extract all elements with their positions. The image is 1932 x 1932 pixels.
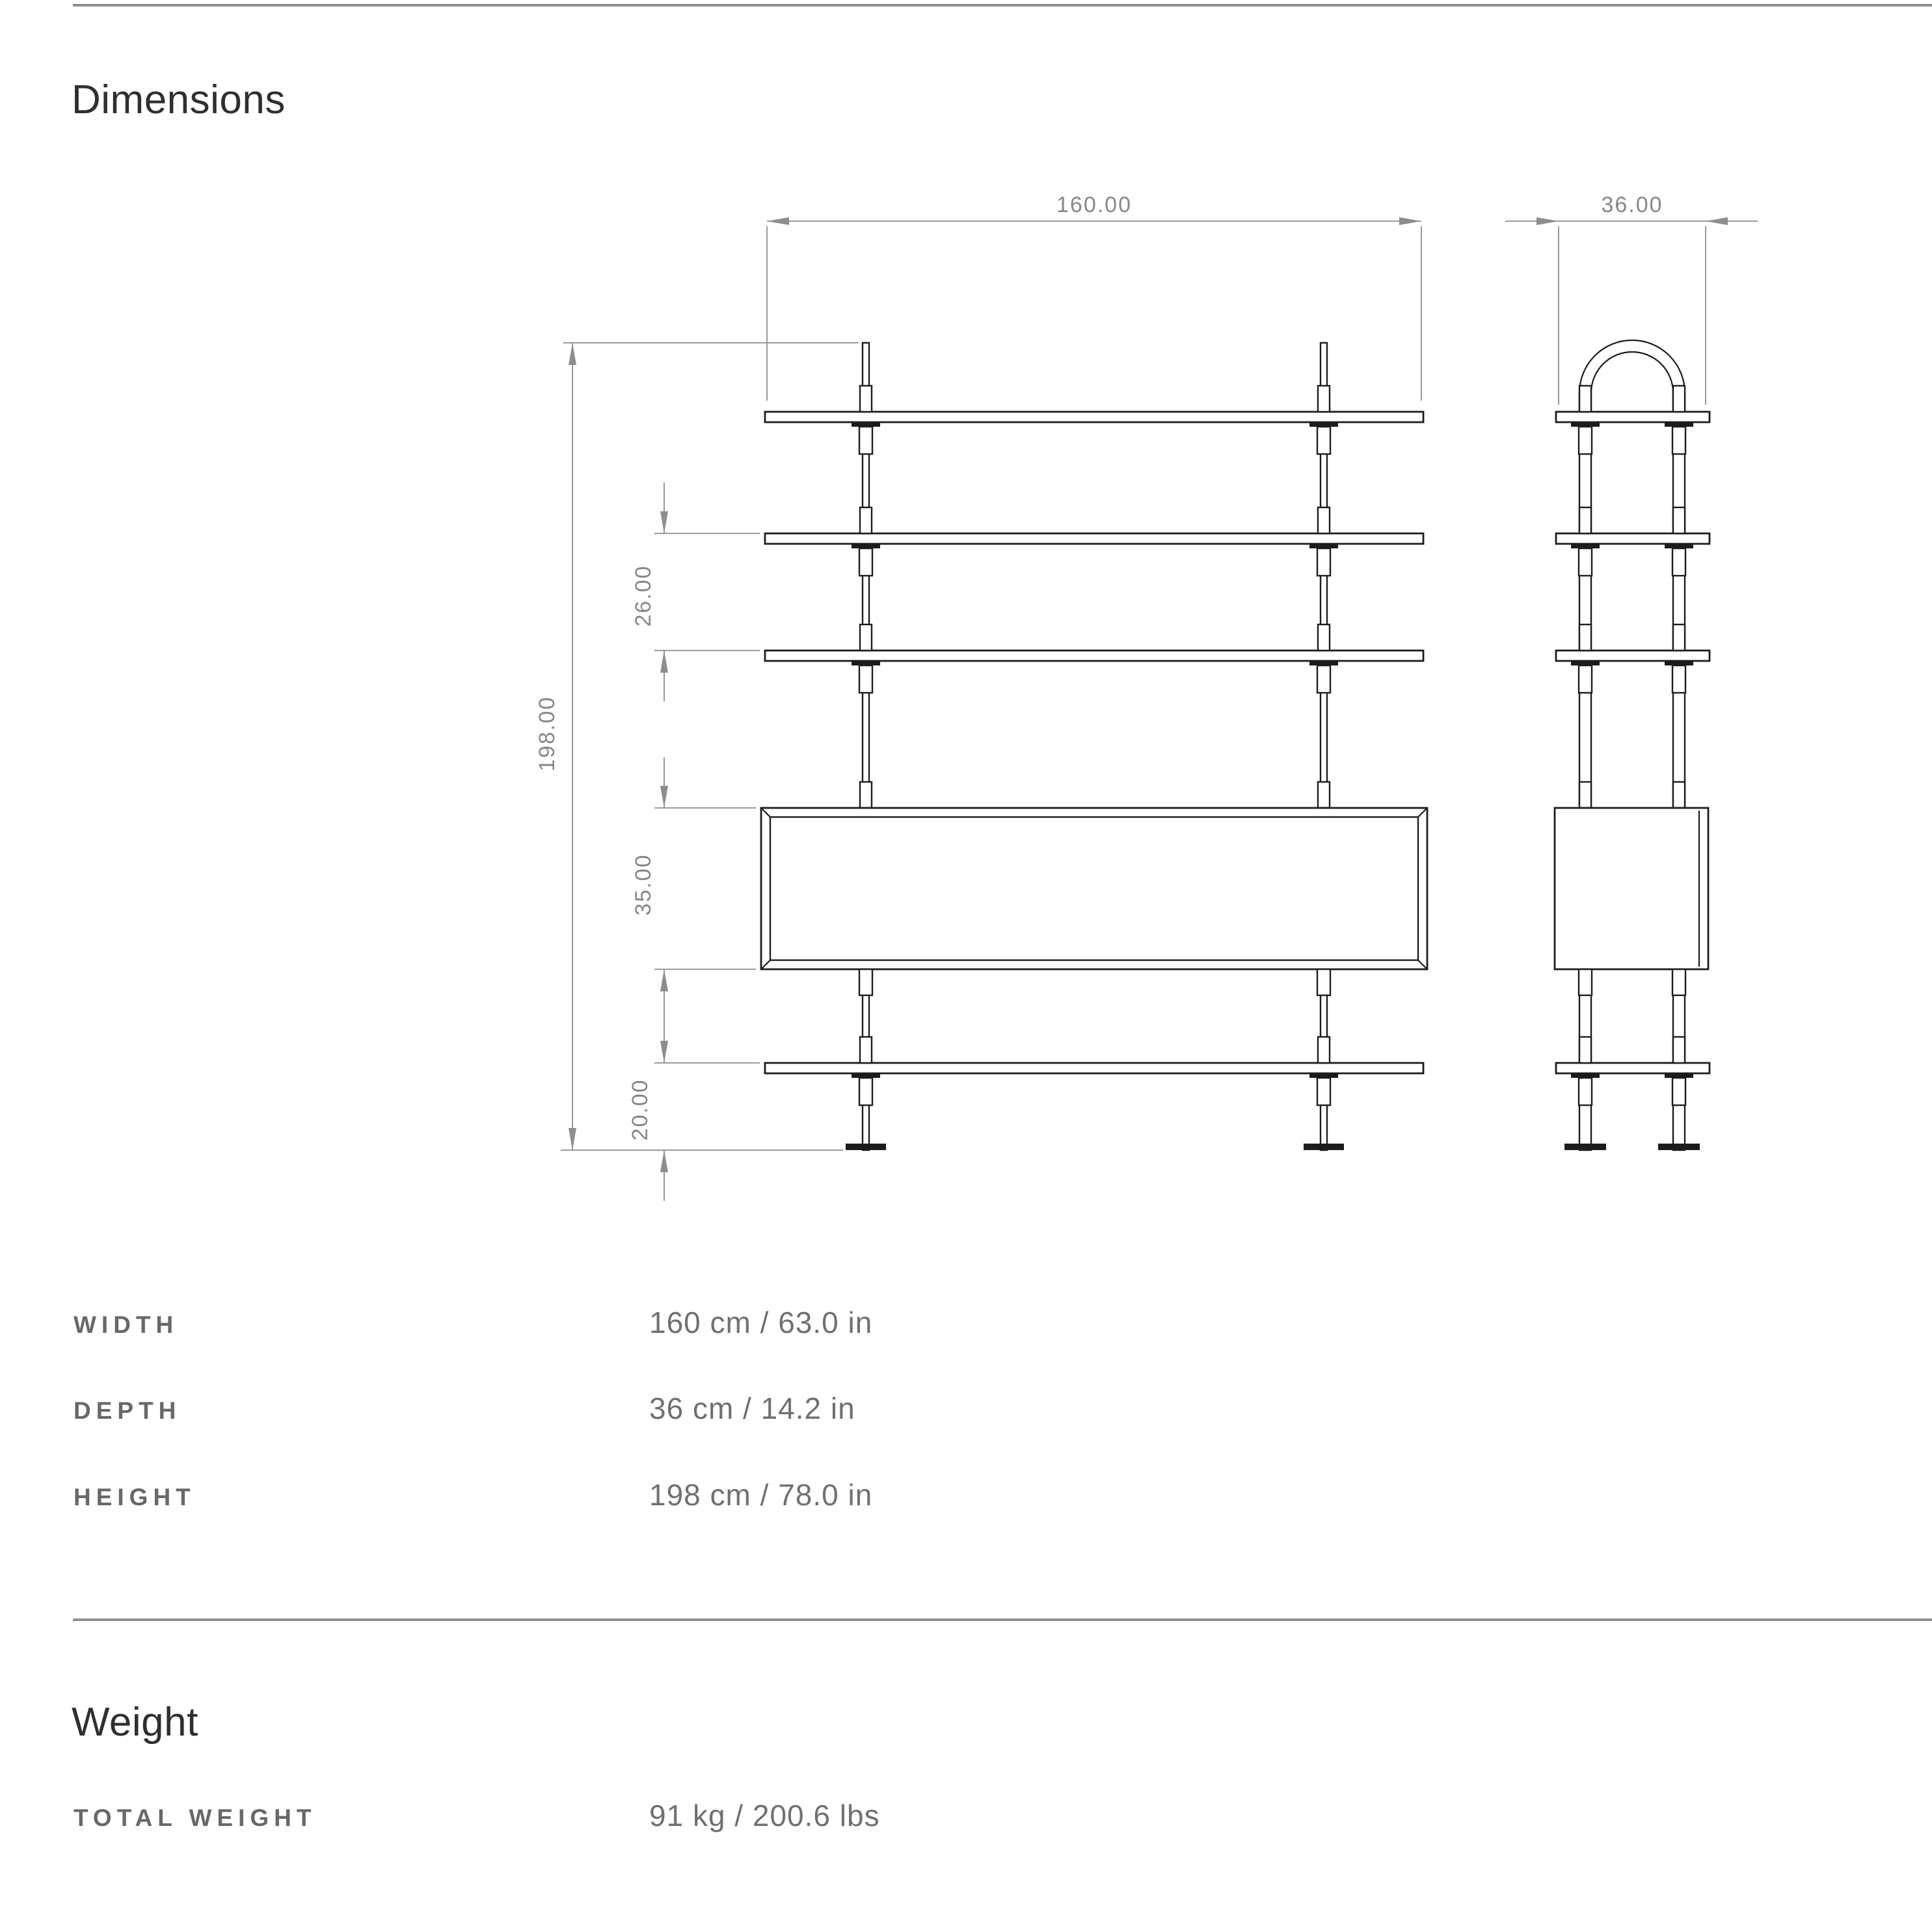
- height-label: HEIGHT: [74, 1484, 649, 1511]
- front-left-post: [863, 343, 869, 1150]
- cabinet-dimension-label: 35.00: [631, 853, 656, 915]
- dimension-cabinet-35: 35.00: [631, 757, 756, 1020]
- front-left-foot: [846, 1144, 886, 1150]
- width-value: 160 cm / 63.0 in: [649, 1305, 872, 1340]
- weight-heading: Weight: [72, 1702, 198, 1743]
- front-shelf-bottom: [765, 1063, 1423, 1073]
- height-value: 198 cm / 78.0 in: [649, 1477, 872, 1512]
- dimension-depth-36: 36.00: [1505, 193, 1758, 405]
- side-front-foot: [1564, 1144, 1606, 1150]
- spec-row-width: WIDTH 160 cm / 63.0 in: [74, 1305, 1854, 1340]
- spec-row-depth: DEPTH 36 cm / 14.2 in: [74, 1391, 1854, 1426]
- side-shelf-2: [1556, 533, 1710, 544]
- clearance-dimension-label: 20.00: [628, 1079, 652, 1140]
- side-shelf-3: [1556, 651, 1710, 661]
- dimension-clearance-20: 20.00: [628, 1012, 760, 1201]
- front-shelf-2: [765, 533, 1423, 544]
- spec-sheet-page: Dimensions: [0, 0, 1932, 1932]
- side-cabinet: [1555, 782, 1708, 995]
- front-shelf-1: [765, 412, 1423, 422]
- side-arch-handle: [1579, 340, 1685, 393]
- side-back-foot: [1658, 1144, 1700, 1150]
- width-dimension-label: 160.00: [1056, 193, 1132, 217]
- front-right-post: [1321, 343, 1327, 1150]
- width-label: WIDTH: [74, 1311, 649, 1339]
- shelf-spacing-dimension-label: 26.00: [631, 565, 656, 626]
- side-view: [1555, 340, 1710, 1150]
- technical-drawing: 160.00 198.00 26.00: [0, 0, 1932, 1932]
- dimension-height-198: 198.00: [535, 343, 859, 1150]
- front-cabinet: [761, 782, 1427, 995]
- height-dimension-label: 198.00: [535, 696, 559, 771]
- front-shelf-3: [765, 651, 1423, 661]
- side-shelf-bottom: [1556, 1063, 1710, 1073]
- total-weight-label: TOTAL WEIGHT: [74, 1805, 649, 1832]
- depth-value: 36 cm / 14.2 in: [649, 1391, 855, 1426]
- total-weight-value: 91 kg / 200.6 lbs: [649, 1798, 880, 1833]
- side-shelf-1: [1556, 412, 1710, 422]
- dimension-shelf-spacing-26: 26.00: [631, 483, 760, 701]
- section-divider: [73, 1618, 1932, 1621]
- spec-row-total-weight: TOTAL WEIGHT 91 kg / 200.6 lbs: [74, 1798, 1854, 1833]
- front-view: [761, 343, 1427, 1150]
- depth-dimension-label: 36.00: [1601, 193, 1663, 217]
- side-view-dimensions: 36.00: [1505, 193, 1758, 405]
- front-right-foot: [1304, 1144, 1344, 1150]
- depth-label: DEPTH: [74, 1397, 649, 1425]
- front-view-dimensions: 160.00 198.00 26.00: [535, 193, 1421, 1201]
- spec-row-height: HEIGHT 198 cm / 78.0 in: [74, 1477, 1854, 1512]
